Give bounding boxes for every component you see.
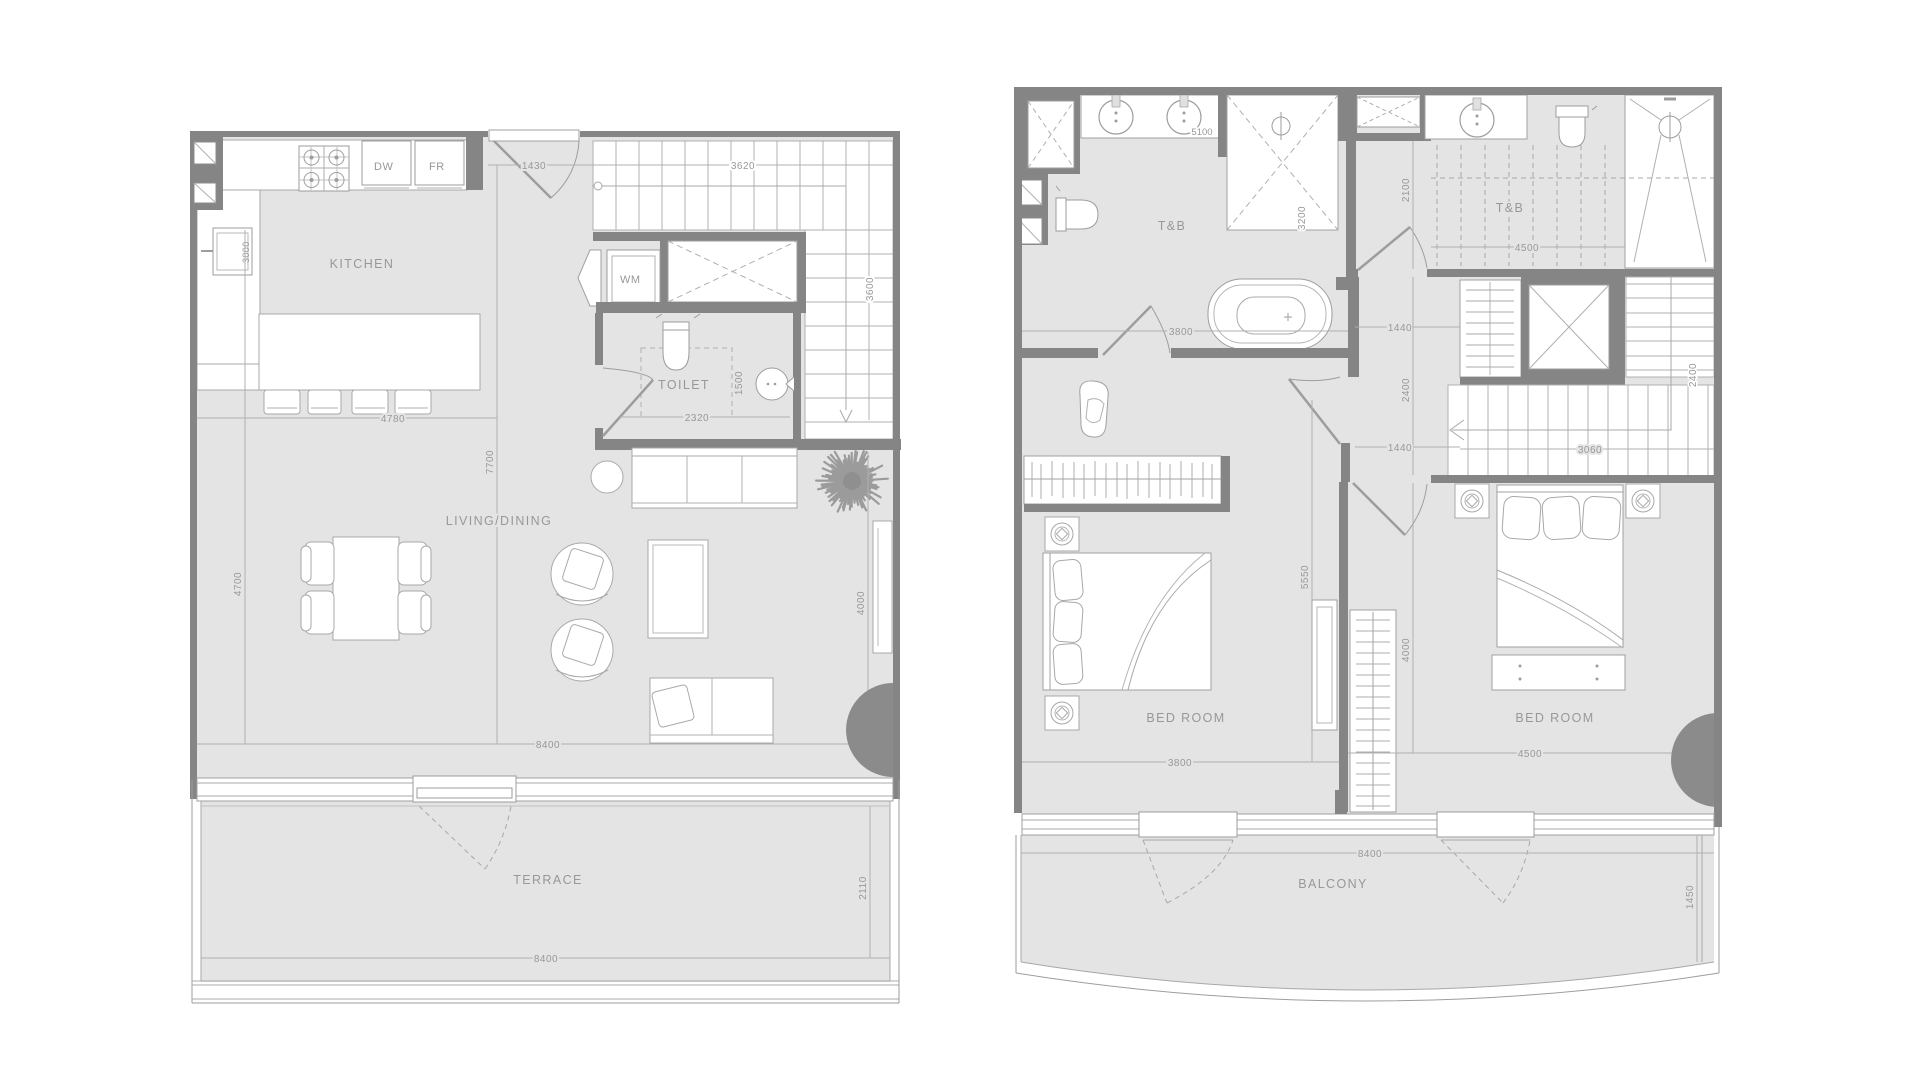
svg-text:1430: 1430	[522, 161, 546, 172]
svg-text:3620: 3620	[731, 161, 755, 172]
svg-text:5550: 5550	[1300, 565, 1311, 589]
svg-text:1450: 1450	[1685, 885, 1696, 909]
svg-text:WM: WM	[620, 274, 641, 286]
svg-text:2320: 2320	[685, 413, 709, 424]
svg-text:1440: 1440	[1388, 443, 1412, 454]
svg-text:4000: 4000	[1401, 638, 1412, 662]
svg-text:3600: 3600	[865, 277, 876, 301]
svg-text:3060: 3060	[1578, 445, 1602, 456]
svg-text:2100: 2100	[1401, 178, 1412, 202]
svg-text:2400: 2400	[1688, 363, 1699, 387]
svg-text:1440: 1440	[1388, 323, 1412, 334]
svg-text:TOILET: TOILET	[658, 378, 710, 392]
svg-text:3800: 3800	[1168, 758, 1192, 769]
svg-text:4700: 4700	[233, 572, 244, 596]
svg-text:KITCHEN: KITCHEN	[330, 257, 395, 271]
svg-text:3800: 3800	[1169, 327, 1193, 338]
svg-text:8400: 8400	[536, 740, 560, 751]
svg-text:3000: 3000	[241, 241, 251, 263]
svg-text:3200: 3200	[1297, 206, 1308, 230]
svg-text:FR: FR	[429, 161, 445, 173]
svg-text:1500: 1500	[734, 371, 745, 395]
svg-text:8400: 8400	[1358, 849, 1382, 860]
svg-text:4500: 4500	[1515, 243, 1539, 254]
svg-text:T&B: T&B	[1496, 201, 1525, 215]
svg-text:5100: 5100	[1191, 127, 1212, 138]
svg-text:TERRACE: TERRACE	[513, 873, 583, 887]
svg-text:DW: DW	[374, 161, 393, 173]
svg-text:2110: 2110	[858, 876, 869, 900]
svg-text:4500: 4500	[1518, 749, 1542, 760]
svg-text:BED ROOM: BED ROOM	[1146, 711, 1225, 725]
svg-text:BED ROOM: BED ROOM	[1515, 711, 1594, 725]
svg-text:4000: 4000	[856, 591, 867, 615]
svg-text:T&B: T&B	[1158, 219, 1187, 233]
svg-text:LIVING/DINING: LIVING/DINING	[446, 514, 552, 528]
svg-text:7700: 7700	[485, 450, 496, 474]
svg-text:BALCONY: BALCONY	[1298, 877, 1368, 891]
svg-text:4780: 4780	[381, 414, 405, 425]
svg-text:2400: 2400	[1401, 378, 1412, 402]
svg-text:8400: 8400	[534, 954, 558, 965]
